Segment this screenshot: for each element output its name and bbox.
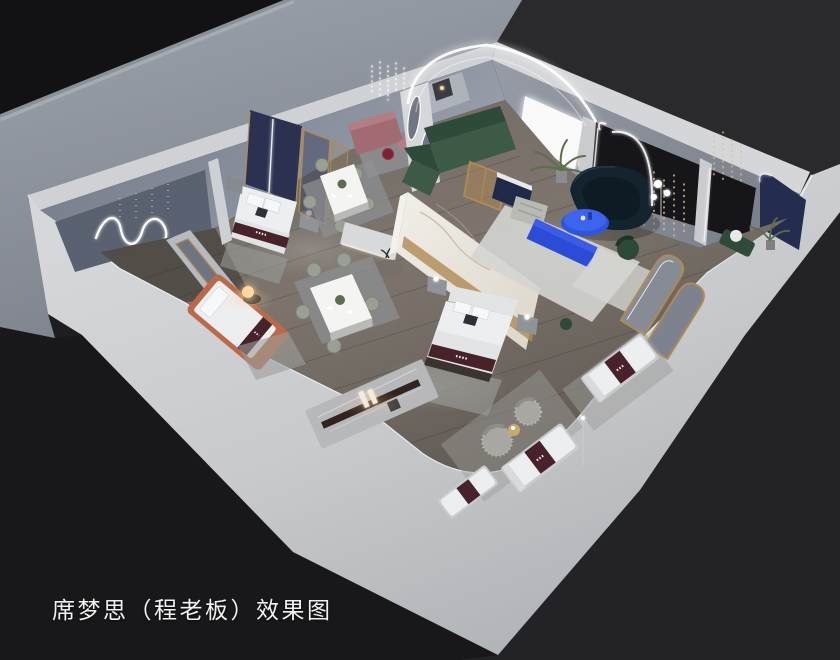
gold-side-table	[508, 424, 520, 436]
fuzzy-swivel-chair-2	[515, 399, 541, 425]
dining2-plant	[335, 295, 345, 305]
warm-light-pool	[222, 288, 274, 312]
dining2-chair-2	[337, 253, 351, 267]
dining1-chair-3	[304, 196, 317, 209]
dining1-chair-1	[316, 159, 329, 172]
red-glass-side-table	[383, 149, 394, 160]
bed2-lamp-1	[433, 276, 438, 281]
render-canvas: 席梦思（程老板）效果图	[0, 0, 840, 660]
showroom-render	[0, 0, 840, 660]
dining2-chair-1	[307, 263, 321, 277]
warm-light-pool-2	[338, 390, 406, 418]
alcove-spot-light	[440, 86, 444, 90]
dining2-chair-3	[296, 305, 310, 319]
bed2-lamp-2	[524, 314, 529, 319]
caption: 席梦思（程老板）效果图	[52, 591, 333, 625]
green-pouf	[560, 318, 572, 330]
dining2-chair-4	[327, 339, 341, 353]
table-decor	[581, 216, 586, 221]
dining1-plant	[338, 180, 347, 189]
